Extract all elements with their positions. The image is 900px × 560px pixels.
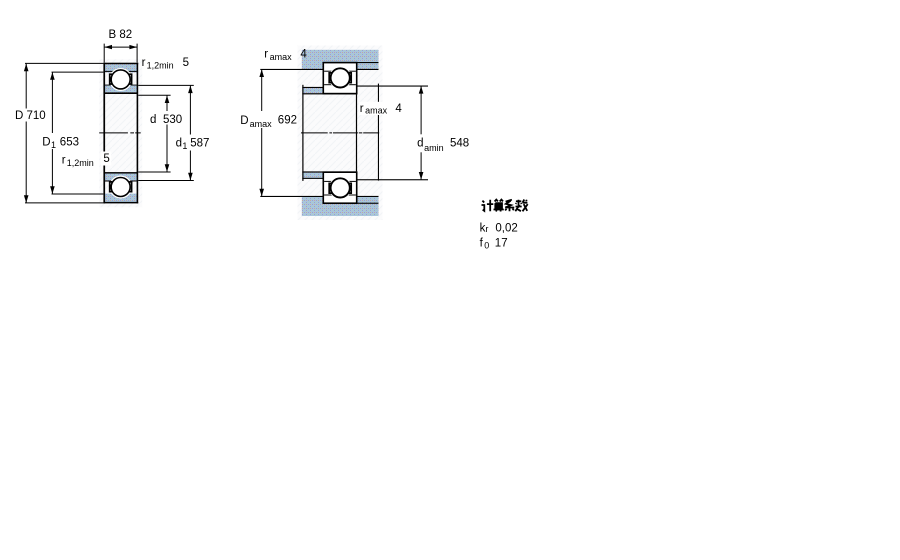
svg-text:1,2min: 1,2min bbox=[147, 60, 174, 70]
svg-text:D: D bbox=[42, 136, 50, 148]
svg-text:530: 530 bbox=[163, 114, 182, 126]
svg-text:548: 548 bbox=[450, 138, 469, 150]
svg-text:4: 4 bbox=[300, 48, 307, 60]
svg-text:r: r bbox=[485, 224, 488, 234]
svg-text:653: 653 bbox=[60, 136, 79, 148]
svg-text:5: 5 bbox=[183, 57, 189, 69]
svg-text:0: 0 bbox=[484, 240, 489, 250]
svg-text:r: r bbox=[360, 103, 364, 115]
svg-text:r: r bbox=[264, 49, 268, 61]
svg-text:amin: amin bbox=[424, 143, 444, 153]
svg-text:5: 5 bbox=[103, 153, 109, 165]
svg-text:D: D bbox=[240, 115, 248, 127]
svg-text:1: 1 bbox=[51, 140, 56, 150]
svg-text:d: d bbox=[150, 114, 156, 126]
svg-text:D 710: D 710 bbox=[15, 110, 46, 122]
svg-text:r: r bbox=[62, 154, 66, 166]
svg-text:d: d bbox=[176, 138, 182, 150]
svg-text:587: 587 bbox=[190, 138, 209, 150]
svg-text:r: r bbox=[142, 57, 146, 69]
svg-text:17: 17 bbox=[495, 237, 508, 249]
svg-text:1: 1 bbox=[182, 141, 187, 151]
svg-text:4: 4 bbox=[395, 103, 402, 115]
svg-text:amax: amax bbox=[250, 119, 273, 129]
svg-text:B 82: B 82 bbox=[109, 29, 133, 41]
svg-text:692: 692 bbox=[278, 115, 297, 127]
svg-text:0,02: 0,02 bbox=[495, 222, 517, 234]
svg-text:amax: amax bbox=[270, 52, 293, 62]
svg-text:amax: amax bbox=[365, 106, 388, 116]
svg-text:d: d bbox=[417, 138, 423, 150]
svg-text:1,2min: 1,2min bbox=[67, 158, 94, 168]
